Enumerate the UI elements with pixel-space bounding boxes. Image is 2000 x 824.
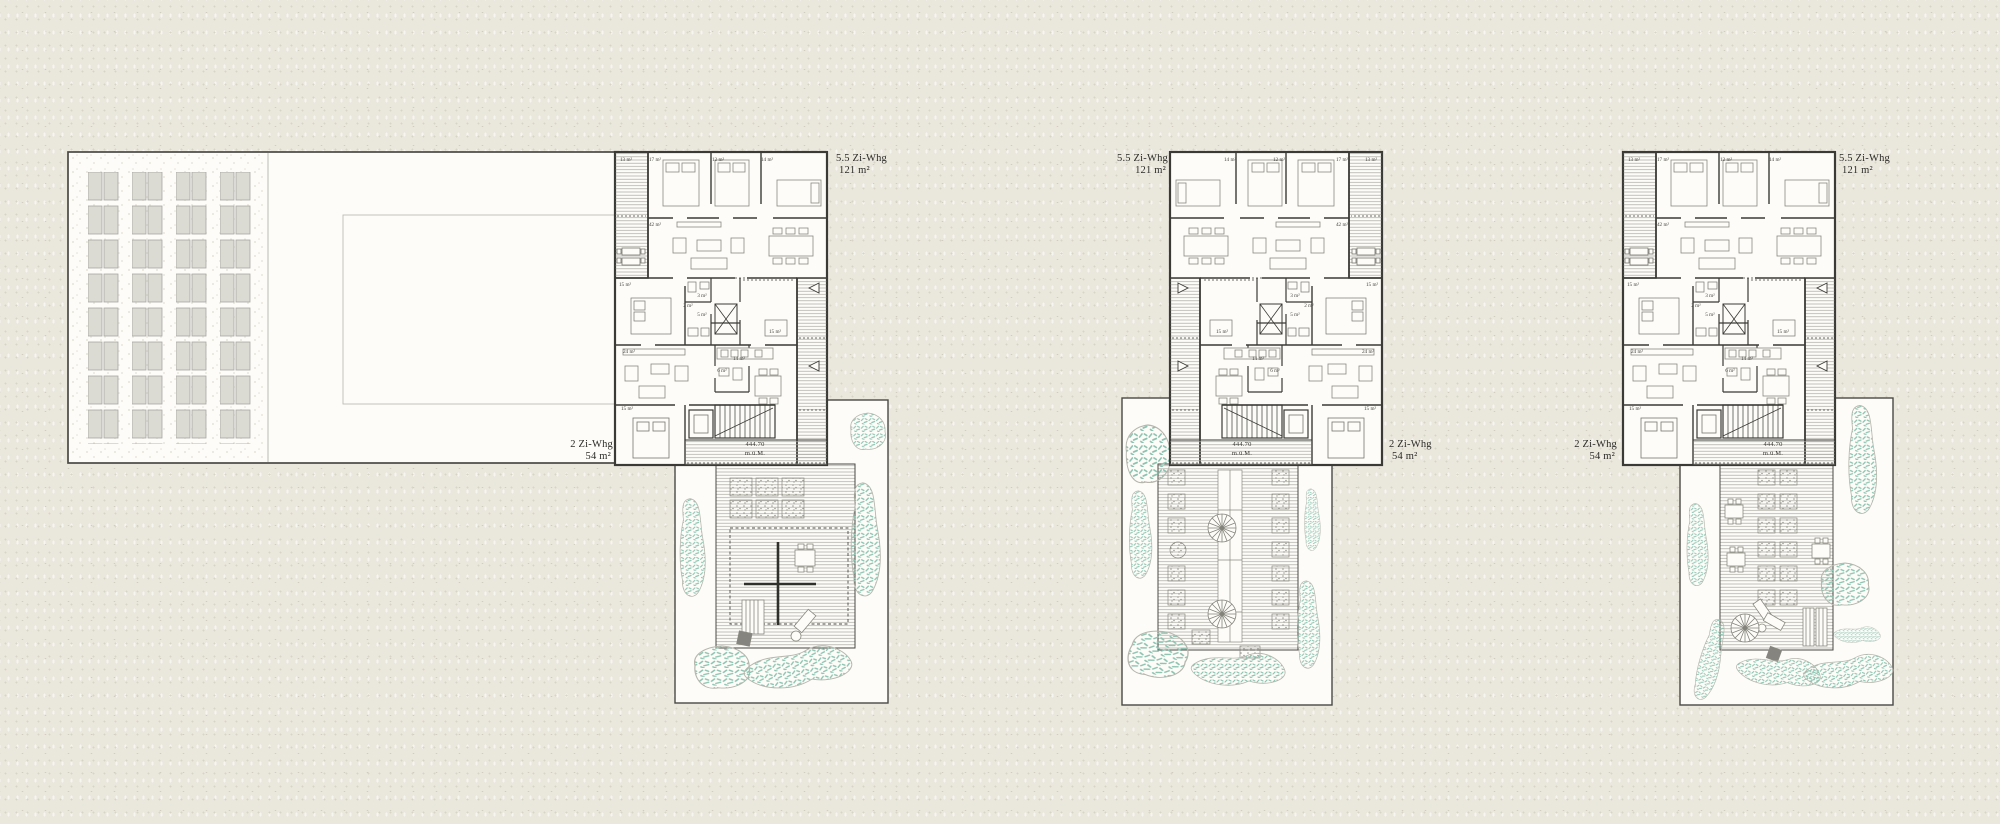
- room-area-label: 2 m²: [1304, 303, 1314, 309]
- room-area-label: 13 m²: [1365, 157, 1378, 163]
- apartment-label-small-center: 2 Zi-Whg 54 m²: [1389, 439, 1432, 463]
- room-area-label: 17 m²: [1657, 157, 1670, 163]
- elevation-label-east: 444.70 m.ü.M.: [1743, 441, 1803, 459]
- building-west-plan: [615, 152, 827, 465]
- room-area-label: 14 m²: [1224, 157, 1237, 163]
- apartment-label-large-east: 5.5 Zi-Whg 121 m²: [1839, 153, 1890, 177]
- room-area-label: 5 m²: [1290, 312, 1300, 318]
- room-area-label: 42 m²: [1657, 222, 1670, 228]
- umbrella: [1208, 600, 1236, 628]
- apartment-type: 2 Zi-Whg: [1574, 439, 1617, 450]
- room-area-label: 12 m²: [1720, 157, 1733, 163]
- building-east-plan: [1623, 152, 1835, 465]
- apartment-label-large-west: 5.5 Zi-Whg 121 m²: [836, 153, 887, 177]
- apartment-type: 5.5 Zi-Whg: [836, 153, 887, 164]
- room-area-label: 5 m²: [1705, 312, 1715, 318]
- site-plan-canvas: 13 m² 17 m² 12 m² 14 m² 42 m² 15 m² 3 m²…: [0, 0, 2000, 824]
- apartment-area: 54 m²: [1557, 451, 1617, 463]
- apartment-type: 2 Zi-Whg: [570, 439, 613, 450]
- room-area-label: 15 m²: [1366, 282, 1379, 288]
- room-area-label: 14 m²: [733, 356, 746, 362]
- room-area-label: 14 m²: [1741, 356, 1754, 362]
- room-area-label: 5 m²: [697, 312, 707, 318]
- room-area-label: 15 m²: [1364, 406, 1377, 412]
- elevation-value: 444.70: [1743, 441, 1803, 450]
- hall-west-wing: [68, 152, 618, 463]
- site-plan-drawing: 13 m² 17 m² 12 m² 14 m² 42 m² 15 m² 3 m²…: [0, 0, 2000, 824]
- room-area-label: 6 m²: [717, 368, 727, 374]
- room-area-label: 14 m²: [761, 157, 774, 163]
- apartment-label-large-center: 5.5 Zi-Whg 121 m²: [1096, 153, 1168, 177]
- elevation-unit: m.ü.M.: [725, 450, 785, 459]
- room-area-label: 2 m²: [1691, 303, 1701, 309]
- room-area-label: 12 m²: [712, 157, 725, 163]
- apartment-area: 121 m²: [836, 165, 887, 177]
- room-area-label: 15 m²: [1629, 406, 1642, 412]
- room-area-label: 13 m²: [620, 157, 633, 163]
- apartment-type: 5.5 Zi-Whg: [1117, 153, 1168, 164]
- umbrella: [1731, 614, 1759, 642]
- room-area-label: 3 m²: [1705, 293, 1715, 299]
- elevation-unit: m.ü.M.: [1212, 450, 1272, 459]
- room-area-label: 17 m²: [1336, 157, 1349, 163]
- elevation-unit: m.ü.M.: [1743, 450, 1803, 459]
- room-area-label: 24 m²: [1631, 349, 1644, 355]
- room-area-label: 15 m²: [1777, 329, 1790, 335]
- room-area-label: 42 m²: [1336, 222, 1349, 228]
- parking-stalls: [84, 172, 260, 444]
- room-area-label: 2 m²: [683, 303, 693, 309]
- room-area-label: 24 m²: [1362, 349, 1375, 355]
- room-area-label: 17 m²: [649, 157, 662, 163]
- room-area-label: 15 m²: [619, 282, 632, 288]
- apartment-area: 121 m²: [1839, 165, 1890, 177]
- room-area-label: 15 m²: [1627, 282, 1640, 288]
- room-area-label: 42 m²: [649, 222, 662, 228]
- apartment-area: 54 m²: [1389, 451, 1432, 463]
- room-area-label: 13 m²: [1628, 157, 1641, 163]
- elevation-label-center: 444.70 m.ü.M.: [1212, 441, 1272, 459]
- apartment-area: 54 m²: [553, 451, 613, 463]
- umbrella: [1208, 514, 1236, 542]
- room-area-label: 3 m²: [697, 293, 707, 299]
- room-area-label: 6 m²: [1725, 368, 1735, 374]
- room-area-label: 15 m²: [1216, 329, 1229, 335]
- building-center-plan: [1170, 152, 1382, 465]
- apartment-type: 2 Zi-Whg: [1389, 439, 1432, 450]
- apartment-label-small-east: 2 Zi-Whg 54 m²: [1557, 439, 1617, 463]
- room-area-label: 14 m²: [1252, 356, 1265, 362]
- apartment-area: 121 m²: [1096, 165, 1168, 177]
- elevation-value: 444.70: [725, 441, 785, 450]
- elevation-value: 444.70: [1212, 441, 1272, 450]
- elevation-label-west: 444.70 m.ü.M.: [725, 441, 785, 459]
- room-area-label: 12 m²: [1273, 157, 1286, 163]
- apartment-label-small-west: 2 Zi-Whg 54 m²: [553, 439, 613, 463]
- room-area-label: 14 m²: [1769, 157, 1782, 163]
- room-area-label: 15 m²: [621, 406, 634, 412]
- apartment-type: 5.5 Zi-Whg: [1839, 153, 1890, 164]
- room-area-label: 24 m²: [623, 349, 636, 355]
- room-area-label: 3 m²: [1290, 293, 1300, 299]
- room-area-label: 15 m²: [769, 329, 782, 335]
- room-area-label: 6 m²: [1270, 368, 1280, 374]
